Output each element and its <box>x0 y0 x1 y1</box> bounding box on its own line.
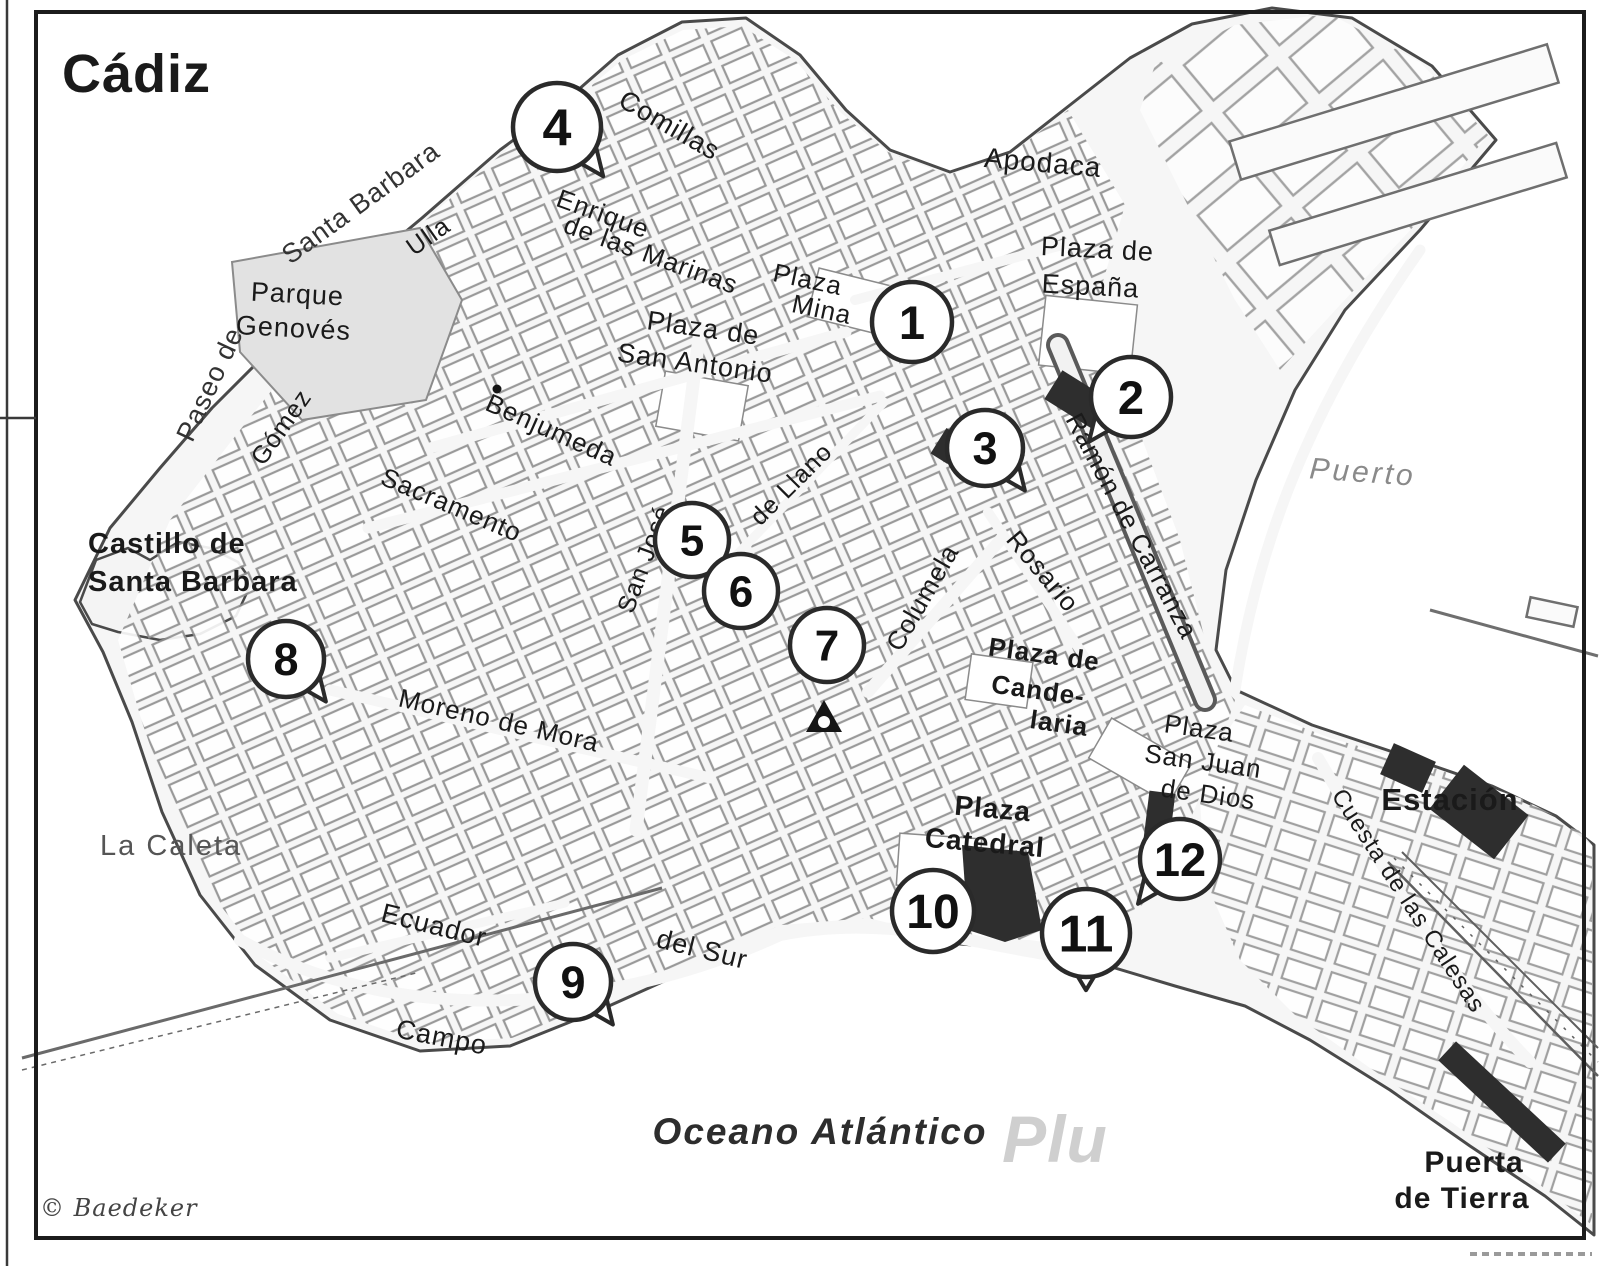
poi-marker-1: 1 <box>872 282 952 362</box>
poi-marker-6: 6 <box>704 554 778 628</box>
map-label-parque-line2: Genovés <box>235 310 351 346</box>
map-label-copyright: © Baedeker <box>40 1194 198 1222</box>
poi-marker-number: 3 <box>972 423 997 474</box>
map-label-la-caleta: La Caleta <box>100 830 242 862</box>
poi-marker-number: 9 <box>560 957 585 1008</box>
map-label-watermark: Plu <box>1002 1102 1108 1176</box>
map-label-castillo-line2: Santa Barbara <box>88 566 298 598</box>
poi-marker-10: 10 <box>892 870 974 952</box>
poi-marker-number: 6 <box>729 568 753 617</box>
quay-building <box>1526 597 1577 627</box>
map-label-plaza-espana-line1: Plaza de <box>1040 231 1154 267</box>
map-label-estacion: Estación <box>1381 782 1518 817</box>
map-label-puerto: Puerto <box>1308 452 1416 492</box>
poi-marker-number: 12 <box>1154 833 1206 886</box>
cadiz-city-map: Cádiz <box>0 0 1600 1266</box>
poi-marker-number: 4 <box>543 99 572 157</box>
map-label-puerta-de-tierra-line2: de Tierra <box>1394 1182 1529 1215</box>
poi-marker-11: 11 <box>1042 889 1130 990</box>
poi-marker-number: 8 <box>273 634 298 685</box>
map-label-puerta-de-tierra-line1: Puerta <box>1424 1146 1523 1179</box>
poi-marker-7: 7 <box>790 608 864 682</box>
map-label-parque-line1: Parque <box>250 277 345 312</box>
map-label-castillo-line1: Castillo de <box>88 528 246 560</box>
map-label-plaza-espana-line2: España <box>1041 268 1140 303</box>
poi-marker-number: 10 <box>906 886 959 939</box>
monument-triangle-dot <box>818 716 830 728</box>
map-label-title: Cádiz <box>62 44 211 104</box>
poi-marker-number: 2 <box>1118 371 1144 424</box>
poi-marker-number: 5 <box>680 517 704 566</box>
poi-marker-number: 1 <box>899 296 925 349</box>
map-label-oceano-atlantico: Oceano Atlántico <box>653 1111 988 1152</box>
poi-marker-number: 7 <box>815 622 839 671</box>
cadiz-map-page: Cádiz <box>0 0 1600 1266</box>
poi-marker-number: 11 <box>1059 905 1114 963</box>
